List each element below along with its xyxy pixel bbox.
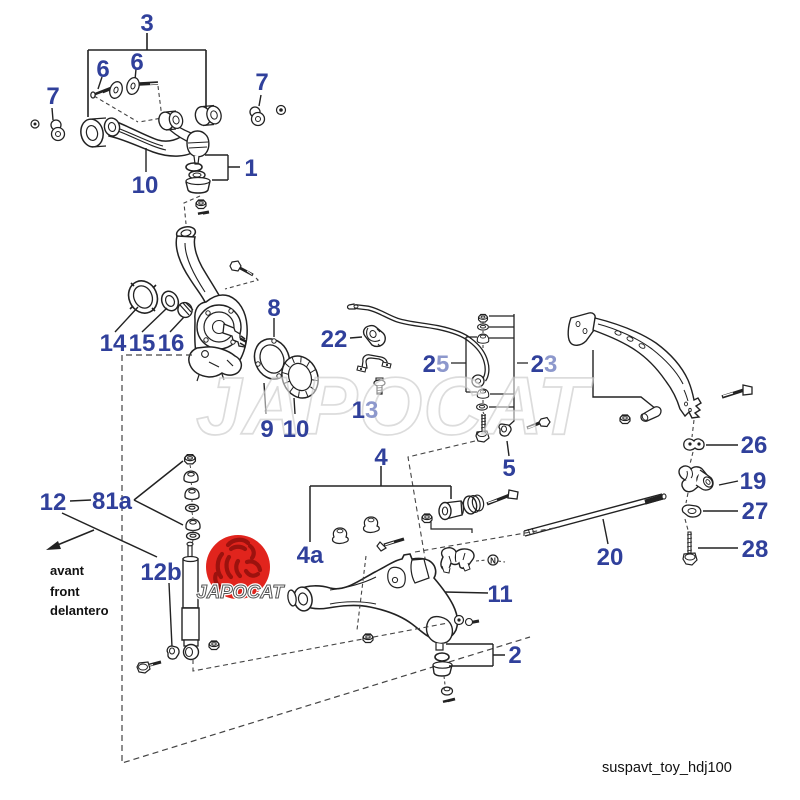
svg-text:suspavt_toy_hdj100: suspavt_toy_hdj100: [602, 760, 732, 776]
svg-text:6: 6: [96, 56, 109, 83]
svg-text:26: 26: [741, 432, 768, 459]
svg-text:7: 7: [46, 83, 59, 110]
svg-text:4a: 4a: [297, 542, 324, 569]
svg-text:4: 4: [374, 444, 388, 471]
svg-text:9: 9: [260, 416, 273, 443]
svg-text:16: 16: [158, 330, 185, 357]
svg-text:front: front: [50, 584, 80, 599]
svg-text:27: 27: [742, 498, 769, 525]
svg-text:12b: 12b: [140, 559, 181, 586]
svg-text:81a: 81a: [92, 488, 133, 515]
svg-text:JAPOCAT: JAPOCAT: [196, 581, 285, 602]
svg-text:3: 3: [140, 10, 153, 37]
svg-text:10: 10: [132, 172, 159, 199]
svg-text:25: 25: [423, 351, 450, 378]
svg-text:N: N: [490, 557, 496, 566]
svg-text:19: 19: [740, 468, 767, 495]
svg-text:10: 10: [283, 416, 310, 443]
svg-text:7: 7: [255, 69, 268, 96]
svg-text:delantero: delantero: [50, 603, 109, 618]
svg-text:8: 8: [267, 295, 280, 322]
svg-text:6: 6: [130, 49, 143, 76]
svg-text:2: 2: [508, 642, 521, 669]
svg-text:14: 14: [100, 330, 127, 357]
svg-text:23: 23: [531, 351, 558, 378]
svg-text:15: 15: [129, 330, 156, 357]
svg-text:avant: avant: [50, 563, 85, 578]
svg-text:22: 22: [321, 326, 348, 353]
svg-text:5: 5: [502, 455, 515, 482]
svg-text:1: 1: [244, 155, 257, 182]
svg-text:28: 28: [742, 536, 769, 563]
svg-text:13: 13: [352, 397, 379, 424]
svg-text:12: 12: [40, 489, 67, 516]
svg-text:20: 20: [597, 544, 624, 571]
svg-text:11: 11: [487, 581, 512, 608]
